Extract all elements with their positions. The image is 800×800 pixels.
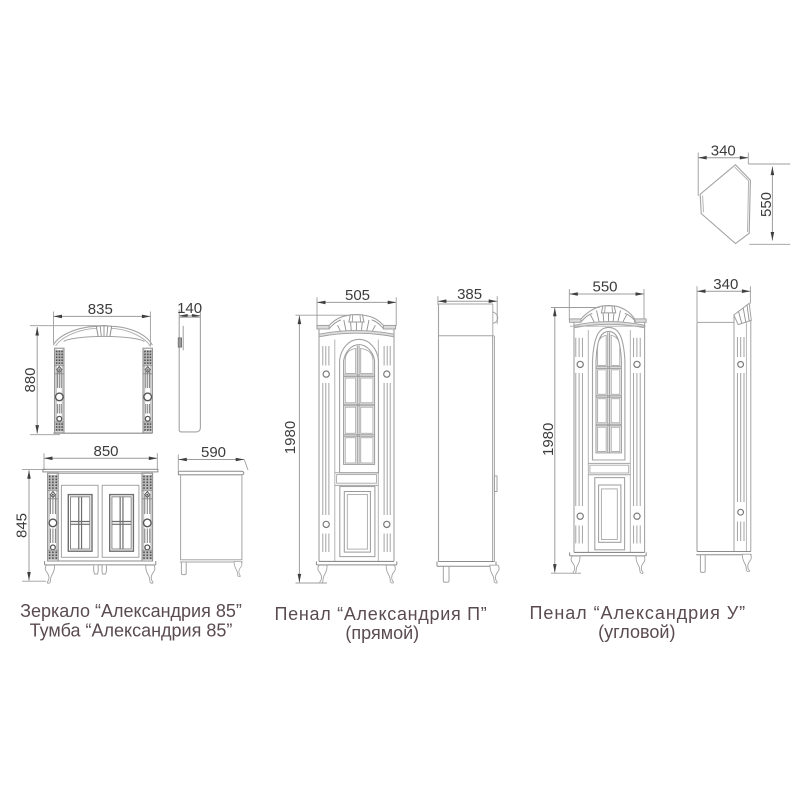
svg-text:Тумба “Александрия 85”: Тумба “Александрия 85”	[30, 621, 233, 641]
svg-text:385: 385	[457, 286, 482, 303]
svg-text:Пенал “Александрия П”: Пенал “Александрия П”	[275, 604, 488, 624]
svg-text:845: 845	[13, 513, 30, 538]
svg-text:835: 835	[88, 301, 113, 318]
svg-text:340: 340	[713, 276, 738, 293]
svg-text:(прямой): (прямой)	[345, 623, 419, 643]
svg-text:850: 850	[93, 443, 118, 460]
svg-text:880: 880	[22, 367, 39, 392]
svg-text:550: 550	[758, 192, 775, 217]
svg-text:(угловой): (угловой)	[598, 622, 675, 642]
svg-text:140: 140	[177, 300, 202, 317]
svg-text:550: 550	[592, 279, 617, 296]
svg-text:590: 590	[201, 444, 226, 461]
svg-text:1980: 1980	[540, 423, 557, 456]
svg-text:505: 505	[345, 287, 370, 304]
svg-text:Пенал “Александрия У”: Пенал “Александрия У”	[529, 603, 746, 623]
svg-text:Зеркало “Александрия 85”: Зеркало “Александрия 85”	[20, 601, 242, 621]
svg-text:1980: 1980	[282, 421, 299, 454]
svg-text:340: 340	[711, 142, 736, 159]
